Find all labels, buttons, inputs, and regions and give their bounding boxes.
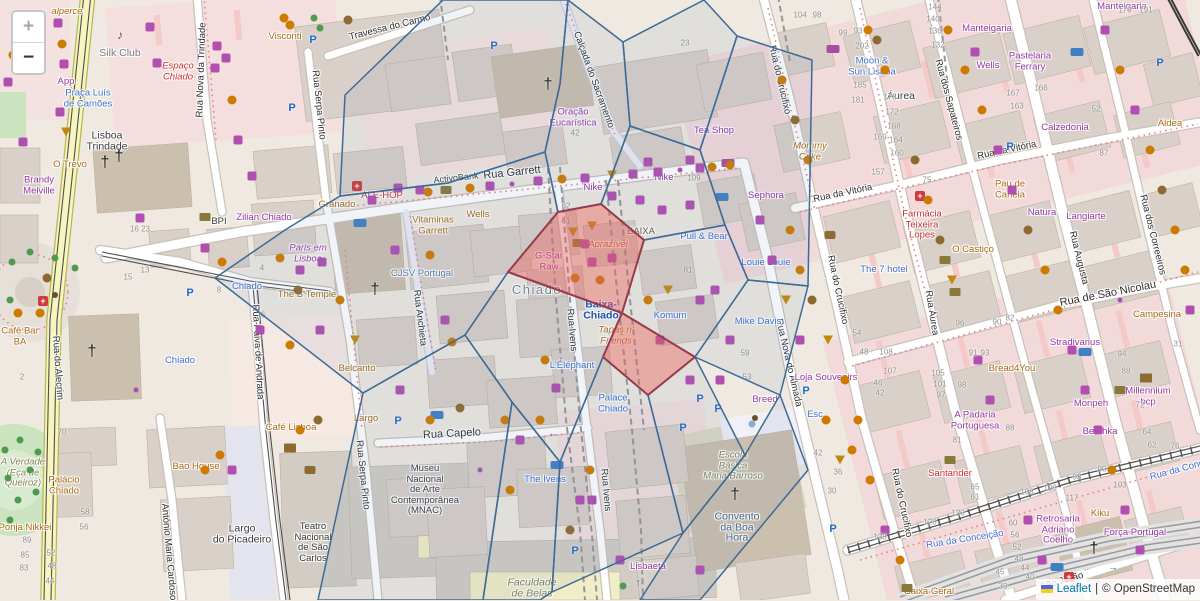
- landuse-area: [0, 92, 26, 138]
- building: [0, 215, 38, 263]
- zoom-in-button[interactable]: +: [13, 12, 44, 42]
- building: [0, 148, 40, 203]
- building: [93, 143, 192, 213]
- ukraine-flag-icon: [1041, 585, 1053, 593]
- attribution-bar: Leaflet | © OpenStreetMap: [1036, 579, 1200, 600]
- osm-link[interactable]: © OpenStreetMap: [1102, 583, 1195, 595]
- attribution-separator: |: [1095, 583, 1098, 595]
- zoom-control[interactable]: + −: [11, 10, 46, 75]
- zoom-out-button[interactable]: −: [13, 43, 44, 73]
- leaflet-link[interactable]: Leaflet: [1057, 583, 1092, 595]
- building: [69, 314, 142, 401]
- plaza-circle: [15, 277, 45, 307]
- map-viewport[interactable]: Travessa do CarmoRua Nova da TrindadeRua…: [0, 0, 1200, 600]
